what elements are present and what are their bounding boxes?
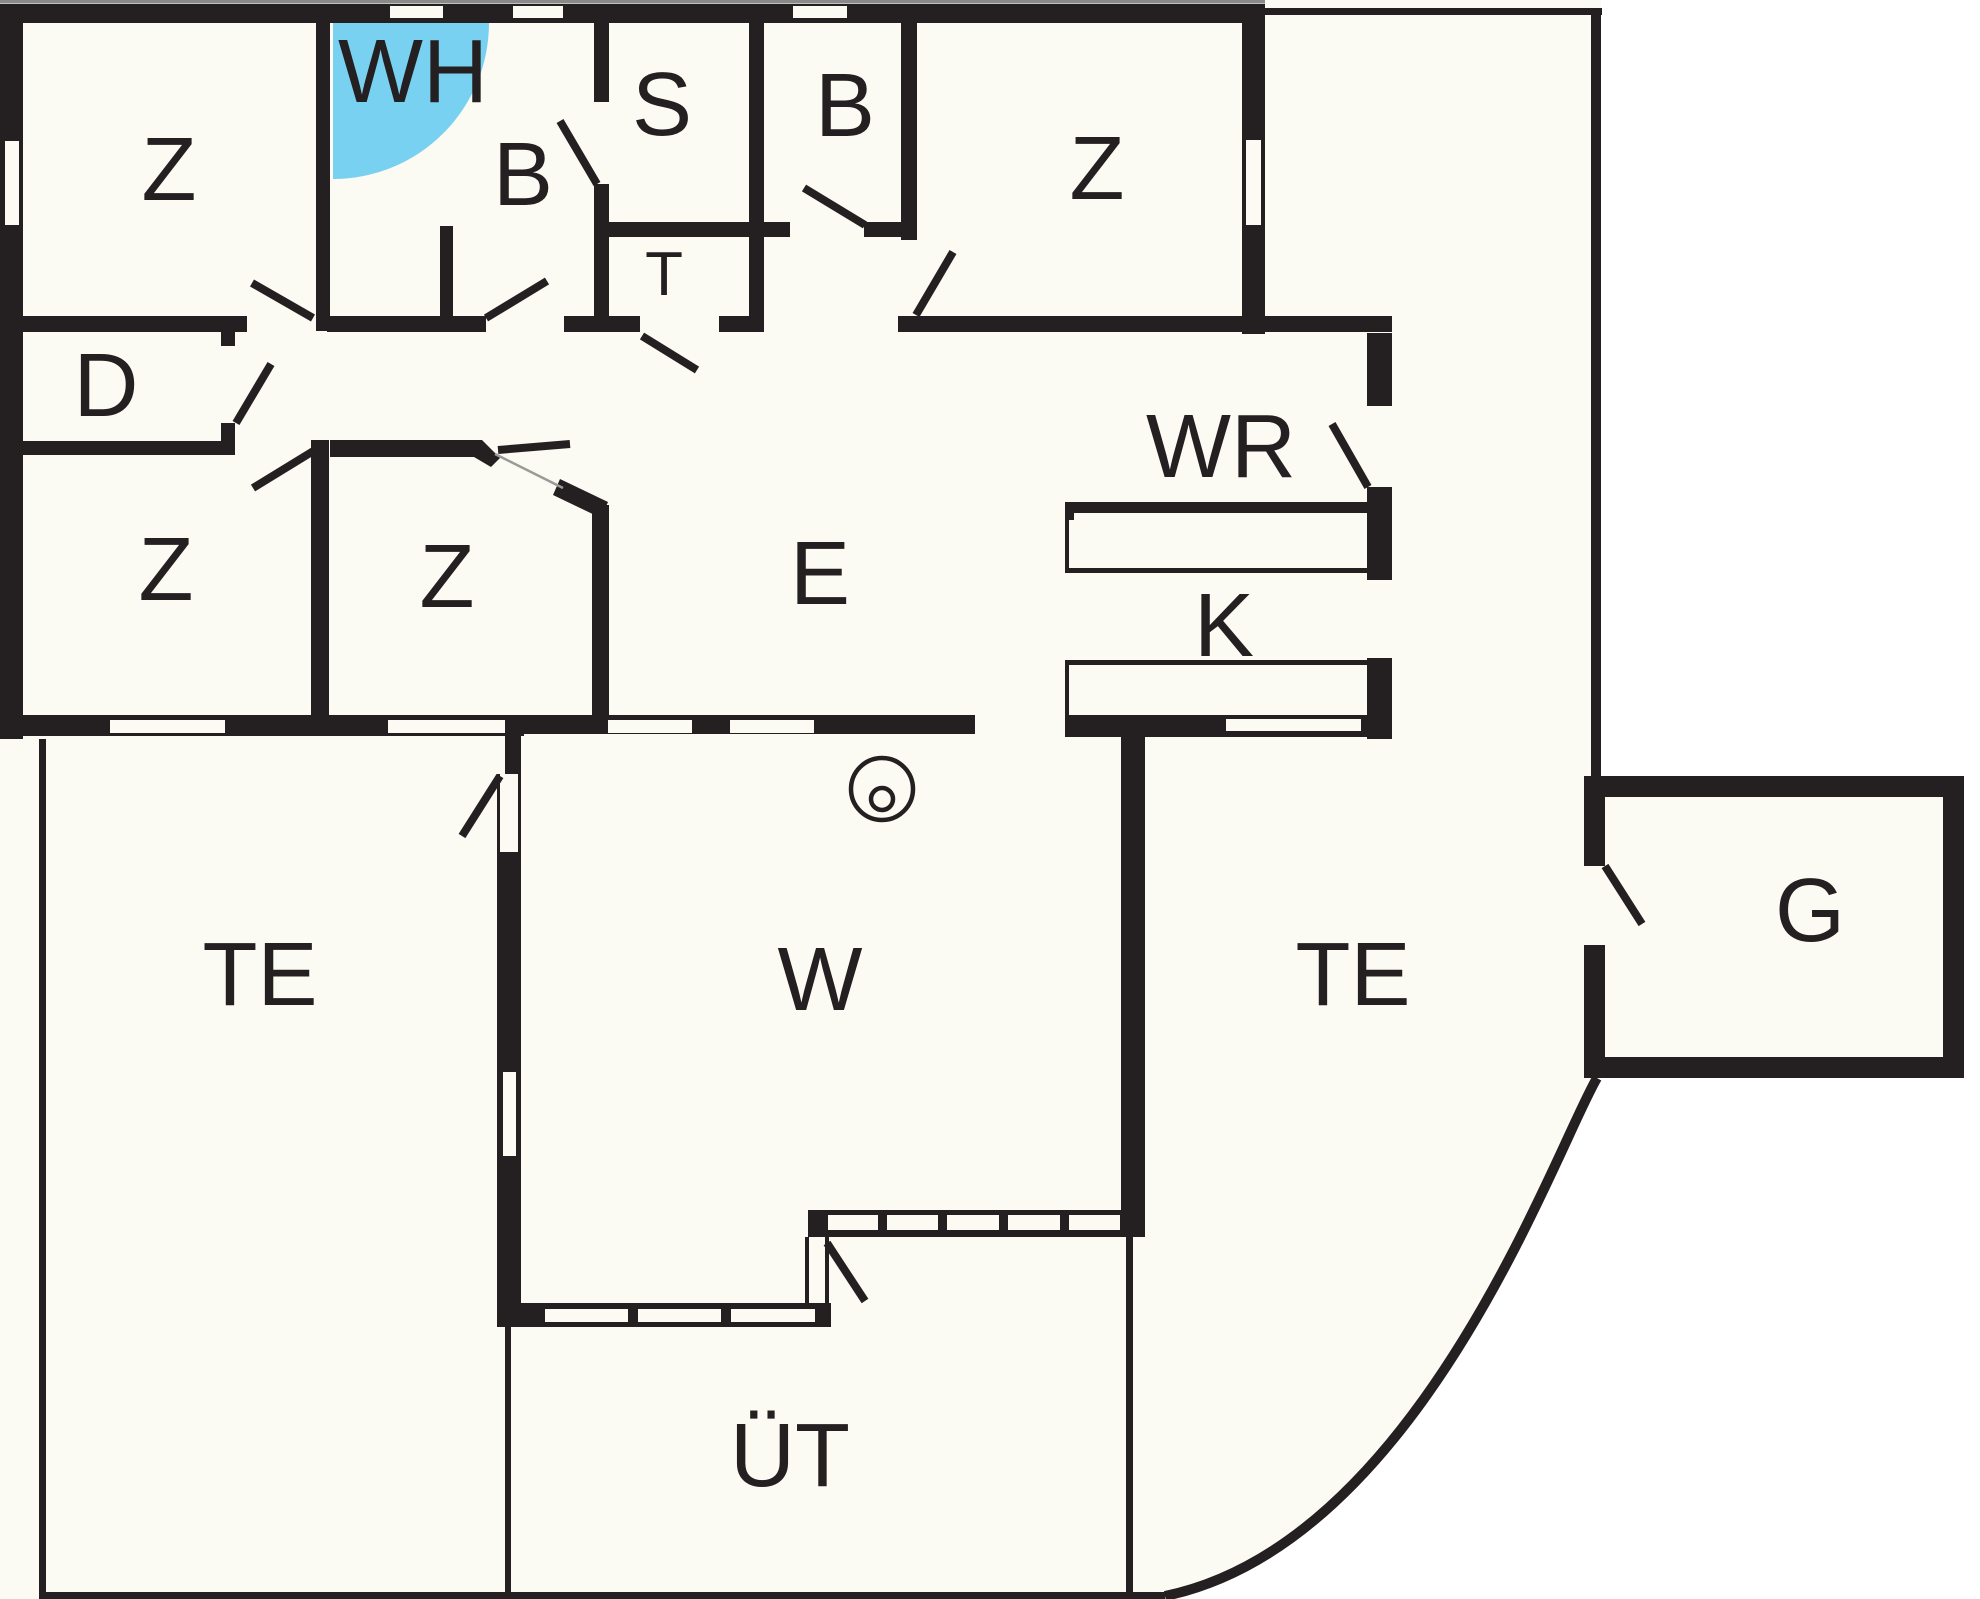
svg-text:B: B [493,125,553,225]
svg-text:ÜT: ÜT [730,1406,850,1506]
svg-text:WH: WH [338,22,488,122]
svg-text:Z: Z [142,120,197,220]
svg-text:W: W [778,930,863,1030]
svg-text:B: B [815,56,875,156]
svg-text:TE: TE [202,925,317,1025]
svg-text:WR: WR [1146,397,1296,497]
svg-text:T: T [645,240,683,309]
svg-text:D: D [74,336,139,436]
svg-text:G: G [1775,861,1845,961]
svg-text:K: K [1194,576,1254,676]
svg-text:Z: Z [139,520,194,620]
svg-text:Z: Z [1070,119,1125,219]
svg-text:Z: Z [420,527,475,627]
svg-text:TE: TE [1295,925,1410,1025]
svg-text:S: S [632,55,692,155]
svg-text:E: E [790,524,850,624]
